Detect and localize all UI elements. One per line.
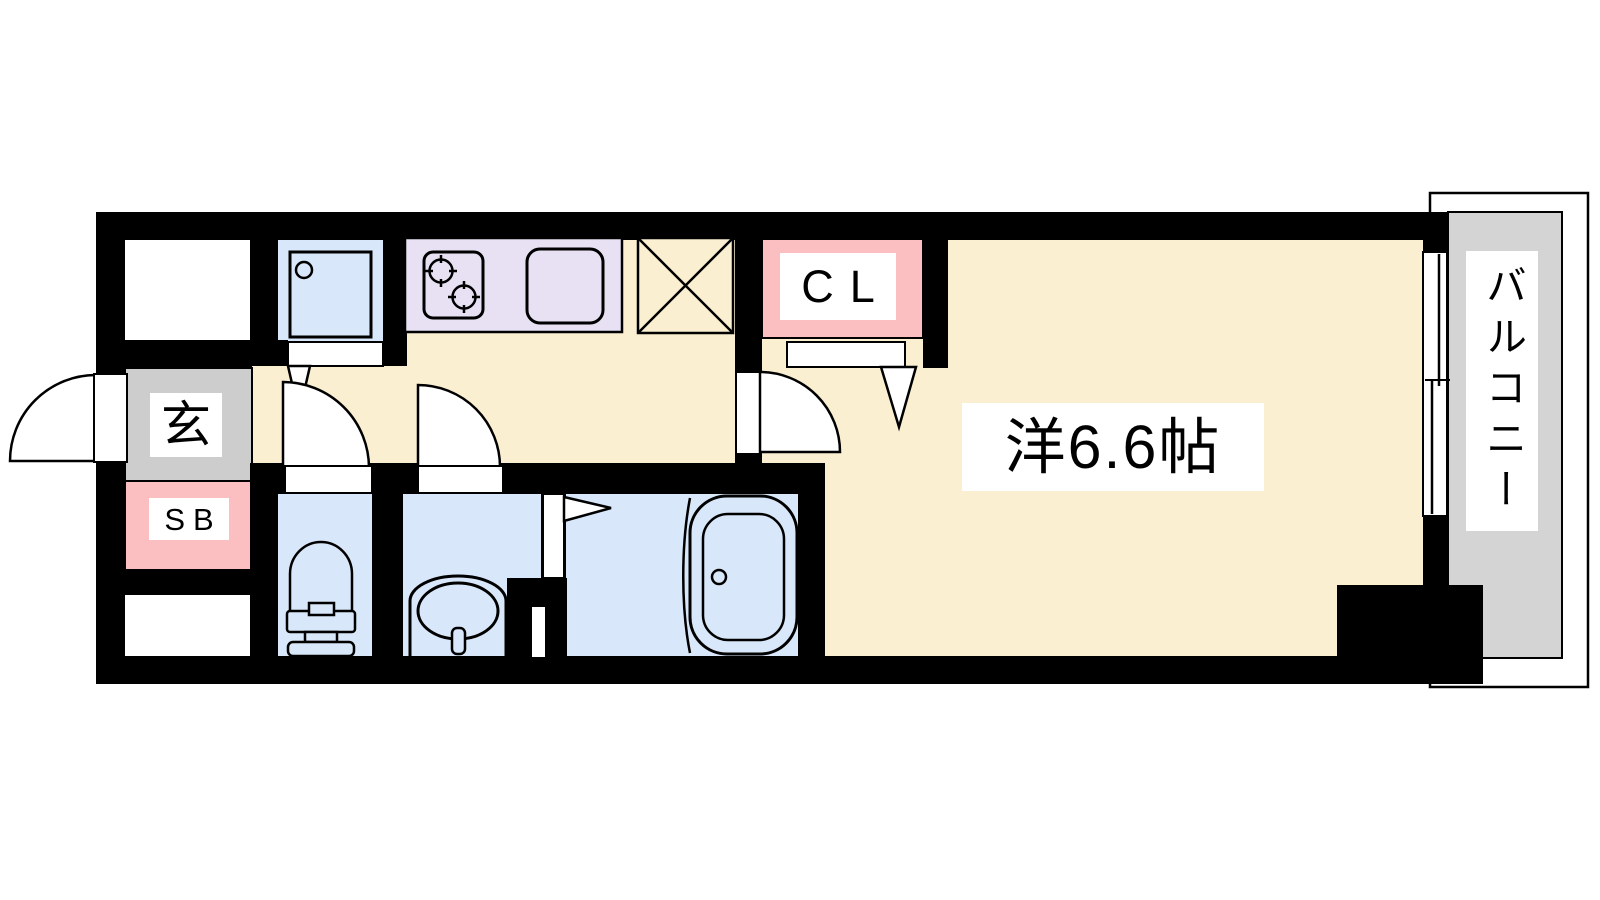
- washer-drain: [296, 262, 312, 278]
- floorplan-canvas: 玄 SB CL 洋6.6帖 バルコニー: [0, 0, 1600, 900]
- toilet-tab: [309, 603, 334, 615]
- kitchen: [405, 238, 622, 332]
- washer-pan-icon: [290, 252, 371, 337]
- balcony-label: バルコニー: [1466, 251, 1538, 531]
- room-door-leaf: [736, 372, 760, 454]
- entrance-door-opening: [94, 374, 127, 462]
- pipe-shaft-bottom: [125, 595, 252, 658]
- window-jamb-bottom: [1423, 516, 1447, 586]
- wall-room-door-upper: [735, 212, 762, 372]
- wall-below-shaft: [125, 340, 252, 368]
- corner-pillar: [1337, 585, 1483, 684]
- wall-notch: [532, 607, 545, 657]
- wall-toilet-left: [250, 463, 278, 658]
- floorplan-drawing: [0, 0, 1600, 900]
- washer-opening: [288, 342, 383, 366]
- window-frame: [1423, 252, 1447, 516]
- toilet-door-opening: [285, 466, 372, 493]
- washbasin-faucet: [452, 628, 465, 654]
- closet-opening: [787, 342, 905, 367]
- closet-label: CL: [780, 253, 896, 320]
- wall-bath-right: [798, 463, 825, 658]
- shoe-box-label: SB: [149, 498, 229, 540]
- fridge-space: [638, 238, 733, 333]
- toilet-bowl: [290, 542, 352, 612]
- entrance-door-swing: [10, 375, 96, 461]
- wall-below-shoebox: [125, 570, 252, 595]
- entrance-label: 玄: [150, 393, 222, 457]
- washbasin-door-opening: [418, 466, 503, 493]
- toilet-tank: [288, 642, 354, 656]
- wall-top: [96, 212, 1447, 240]
- balcony-window: [1423, 252, 1450, 516]
- wall-toilet-washbasin: [372, 494, 403, 657]
- main-room-label: 洋6.6帖: [962, 403, 1264, 491]
- wall-washer-kitchen: [383, 212, 407, 366]
- kitchen-sink-icon: [527, 249, 603, 323]
- wall-room-door-lower: [735, 452, 762, 494]
- wall-closet-right: [923, 238, 948, 368]
- pipe-shaft-top: [125, 240, 252, 340]
- wall-bottom: [96, 656, 1426, 684]
- bathroom: [566, 494, 798, 657]
- toilet-base: [305, 632, 337, 642]
- wall-washer-left: [250, 340, 288, 366]
- bath-door-strip: [543, 494, 564, 578]
